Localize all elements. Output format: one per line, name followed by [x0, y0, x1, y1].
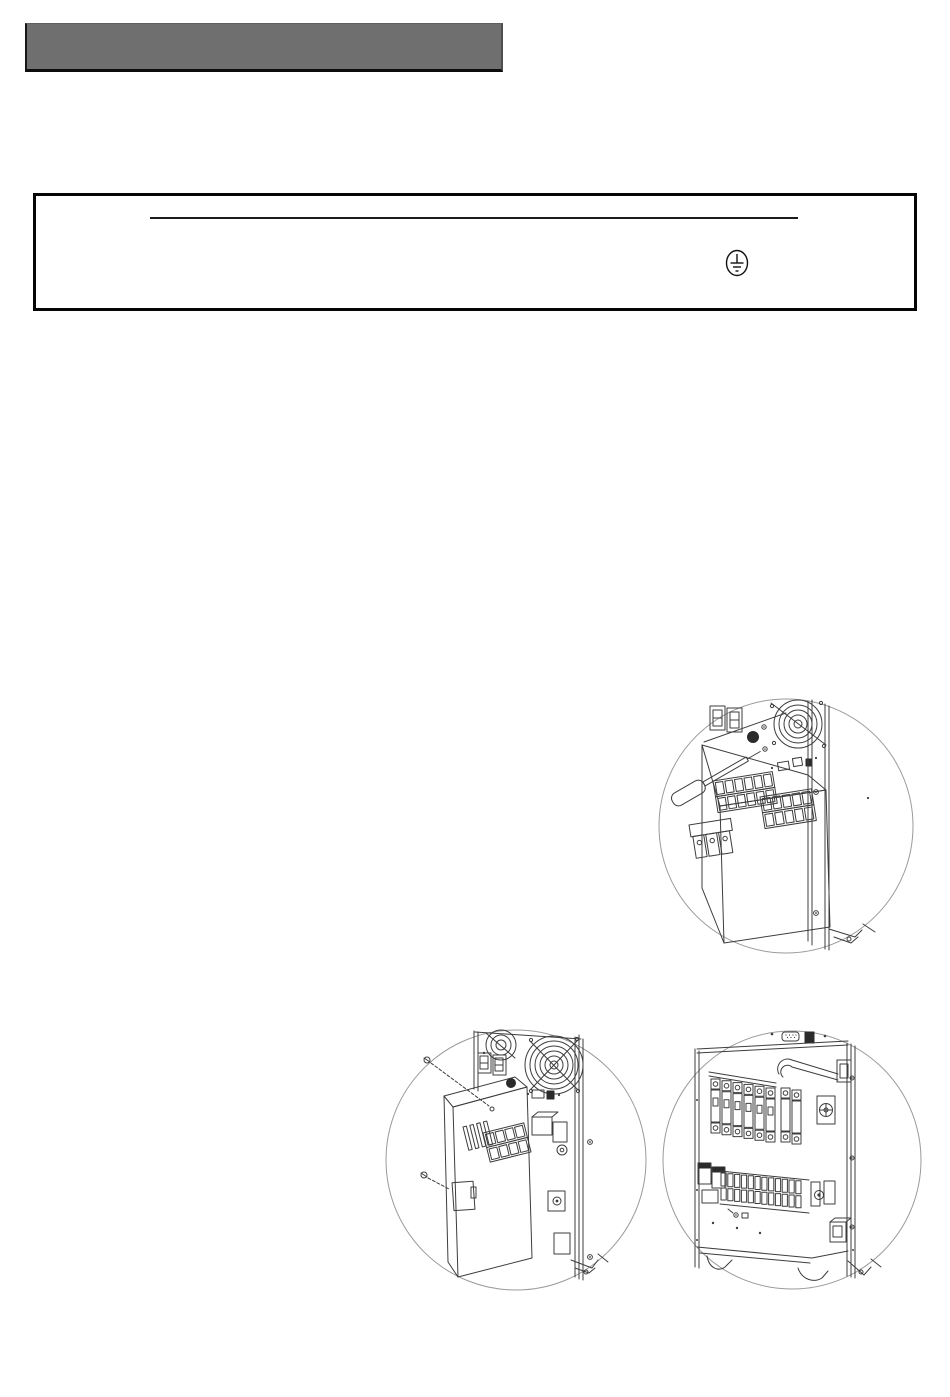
figure-terminal-blocks-exposed: [662, 1030, 922, 1290]
fan-icon: [525, 1036, 583, 1094]
heading-rule: [150, 217, 798, 219]
cable-bracket: [778, 1059, 851, 1082]
signal-connectors: [527, 1090, 560, 1099]
terminal-pattern: [483, 1123, 531, 1162]
vent-slots: [463, 1121, 493, 1150]
knob-icon: [507, 1079, 516, 1088]
rotary-terminal-icon: [817, 1096, 835, 1124]
figure-cover-removal-exploded: [385, 1029, 649, 1293]
signal-connectors: [771, 757, 817, 771]
ups-rear-cover-screwdriver-illustration: [658, 698, 918, 958]
mounting-screw-icon: [424, 1057, 489, 1106]
terminal-cover: [444, 1077, 532, 1277]
ups-rear-cover-exploded-illustration: [385, 1029, 649, 1293]
mounting-screw-icon: [421, 1172, 449, 1189]
ups-rear-terminal-blocks-illustration: [662, 1030, 922, 1290]
fan-icon: [762, 700, 826, 748]
leveling-foot: [798, 1268, 828, 1280]
protective-earth-ground-icon: [725, 249, 749, 277]
terminal-cover: [689, 745, 830, 943]
notice-box: [33, 193, 917, 311]
knob-icon: [748, 732, 759, 743]
cabinet-side-rail: [575, 1035, 592, 1280]
terminal-blocks: [713, 772, 777, 813]
section-header-bar: [25, 23, 503, 72]
network-port-icon: [805, 1032, 814, 1043]
fastener-icons: [728, 1209, 748, 1218]
figure-cover-screw-tightening: [658, 698, 918, 958]
terminal-blocks: [532, 1112, 570, 1254]
cabinet-side-rail: [808, 700, 869, 950]
small-terminal-block: [689, 818, 736, 858]
circuit-breakers: [709, 1072, 835, 1144]
leveling-foot: [829, 924, 875, 943]
terminal-strip: [698, 1163, 835, 1213]
serial-port-icon: [782, 1032, 799, 1041]
manual-page: [0, 0, 950, 1397]
